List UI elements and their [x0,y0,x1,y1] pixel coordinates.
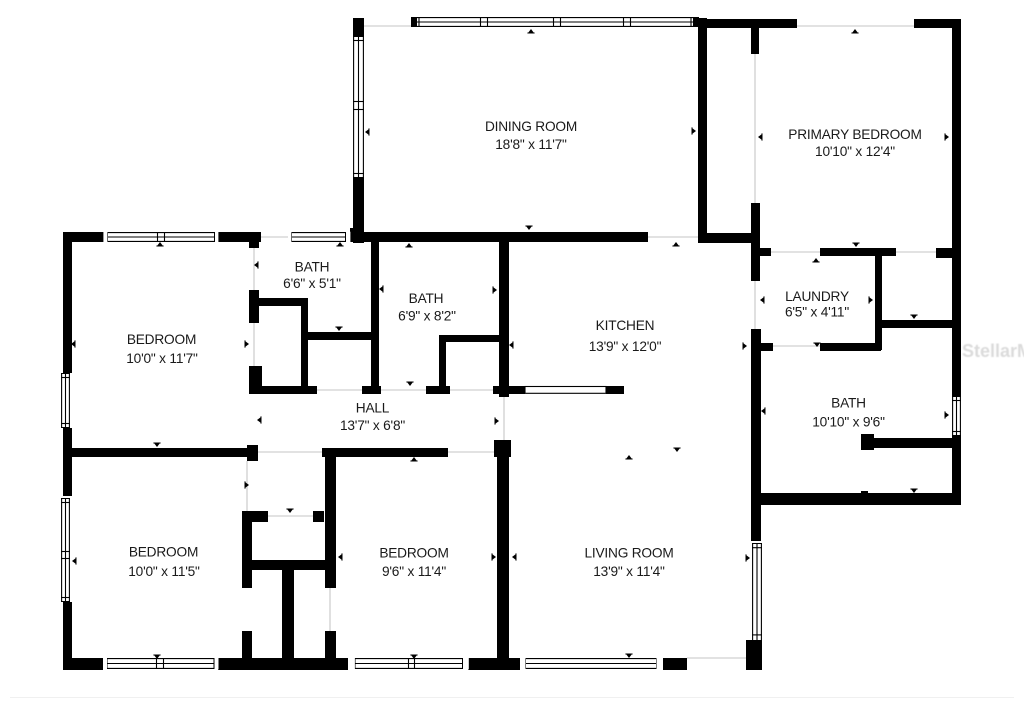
svg-text:PRIMARY BEDROOM: PRIMARY BEDROOM [788,127,921,142]
svg-text:6'6" x 5'1": 6'6" x 5'1" [283,276,341,291]
svg-text:13'9" x 11'4": 13'9" x 11'4" [593,564,665,579]
svg-text:18'8" x 11'7": 18'8" x 11'7" [495,137,567,152]
svg-text:BEDROOM: BEDROOM [379,546,448,561]
svg-text:HALL: HALL [356,401,390,416]
svg-text:13'7" x 6'8": 13'7" x 6'8" [340,418,405,433]
svg-text:13'9" x 12'0": 13'9" x 12'0" [589,339,662,354]
svg-text:StellarMLS: StellarMLS [962,341,1024,361]
svg-text:LAUNDRY: LAUNDRY [785,289,849,304]
svg-text:10'10" x 12'4": 10'10" x 12'4" [815,144,895,159]
svg-text:6'5" x 4'11": 6'5" x 4'11" [785,305,849,320]
svg-text:LIVING ROOM: LIVING ROOM [584,546,673,561]
svg-text:DINING ROOM: DINING ROOM [485,119,577,134]
svg-text:BATH: BATH [295,260,330,275]
svg-text:10'0" x 11'7": 10'0" x 11'7" [126,351,198,366]
svg-text:BEDROOM: BEDROOM [129,545,198,560]
svg-text:KITCHEN: KITCHEN [596,318,655,333]
svg-text:BATH: BATH [409,291,444,306]
svg-text:10'0" x 11'5": 10'0" x 11'5" [128,564,200,579]
svg-text:10'10" x 9'6": 10'10" x 9'6" [812,415,885,430]
svg-text:6'9" x 8'2": 6'9" x 8'2" [398,309,456,324]
svg-text:BATH: BATH [831,396,866,411]
svg-text:BEDROOM: BEDROOM [127,332,196,347]
svg-text:9'6" x 11'4": 9'6" x 11'4" [382,564,446,579]
